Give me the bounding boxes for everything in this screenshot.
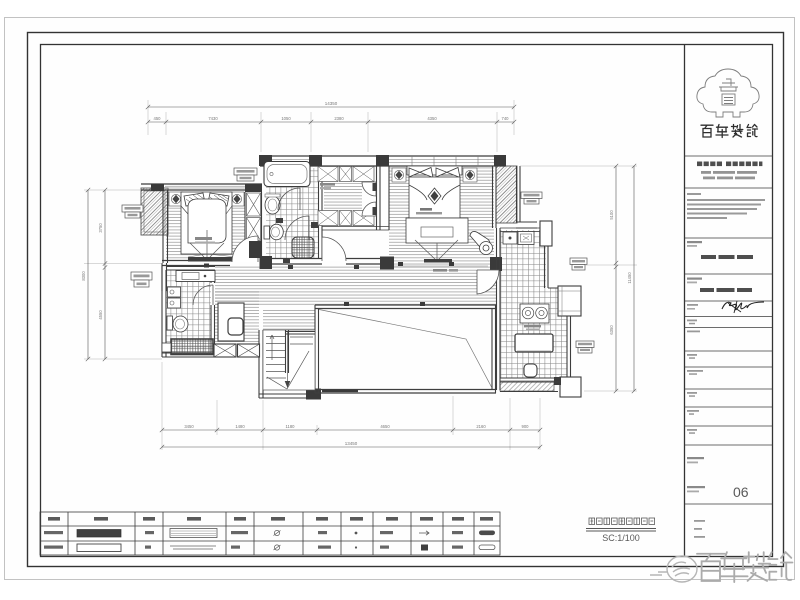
svg-text:2380: 2380 [334,116,344,121]
svg-text:6350: 6350 [609,325,614,335]
svg-text:900: 900 [522,424,530,429]
svg-text:5100: 5100 [609,210,614,220]
svg-text:3450: 3450 [184,424,194,429]
svg-text:13450: 13450 [345,441,358,446]
svg-text:1480: 1480 [235,424,245,429]
svg-text:06: 06 [733,484,749,500]
svg-text:450: 450 [154,116,162,121]
svg-text:4550: 4550 [98,310,103,320]
svg-text:3750: 3750 [98,223,103,233]
svg-text:1050: 1050 [281,116,291,121]
svg-text:4350: 4350 [427,116,437,121]
svg-text:2160: 2160 [476,424,486,429]
svg-text:740: 740 [502,116,510,121]
svg-text:1180: 1180 [285,424,295,429]
svg-text:7430: 7430 [208,116,218,121]
svg-text:8300: 8300 [81,271,86,281]
svg-text:11450: 11450 [627,272,632,284]
svg-text:14350: 14350 [325,101,338,106]
svg-text:4650: 4650 [380,424,390,429]
svg-text:SC:1/100: SC:1/100 [602,533,640,543]
